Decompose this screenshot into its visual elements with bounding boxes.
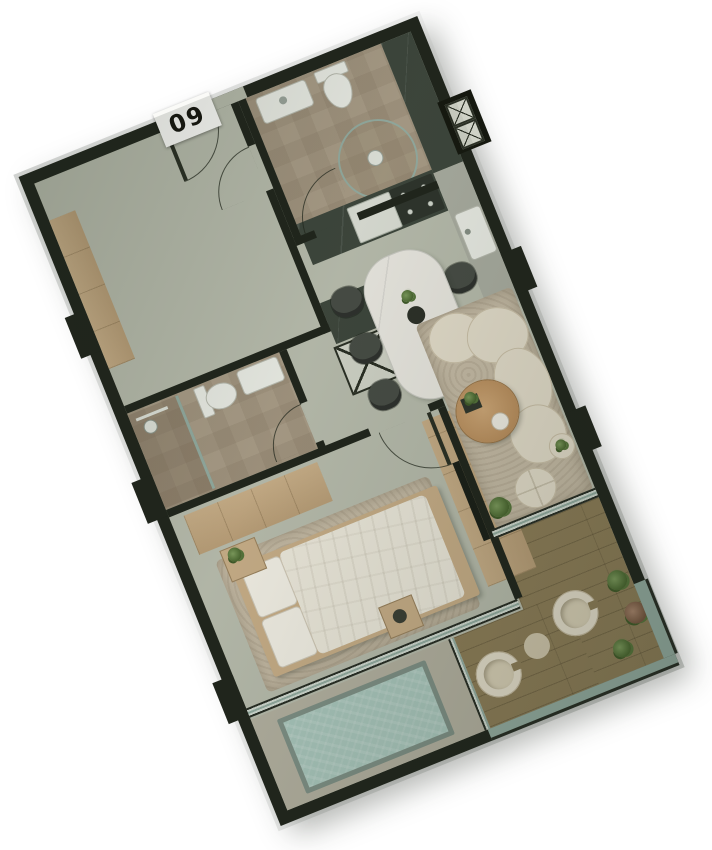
apartment-unit-plan: 09 bbox=[19, 16, 680, 826]
lounge-chair-seat bbox=[556, 594, 594, 632]
floor-plan-canvas: 09 bbox=[0, 0, 712, 850]
lounge-chair-seat bbox=[480, 655, 518, 693]
